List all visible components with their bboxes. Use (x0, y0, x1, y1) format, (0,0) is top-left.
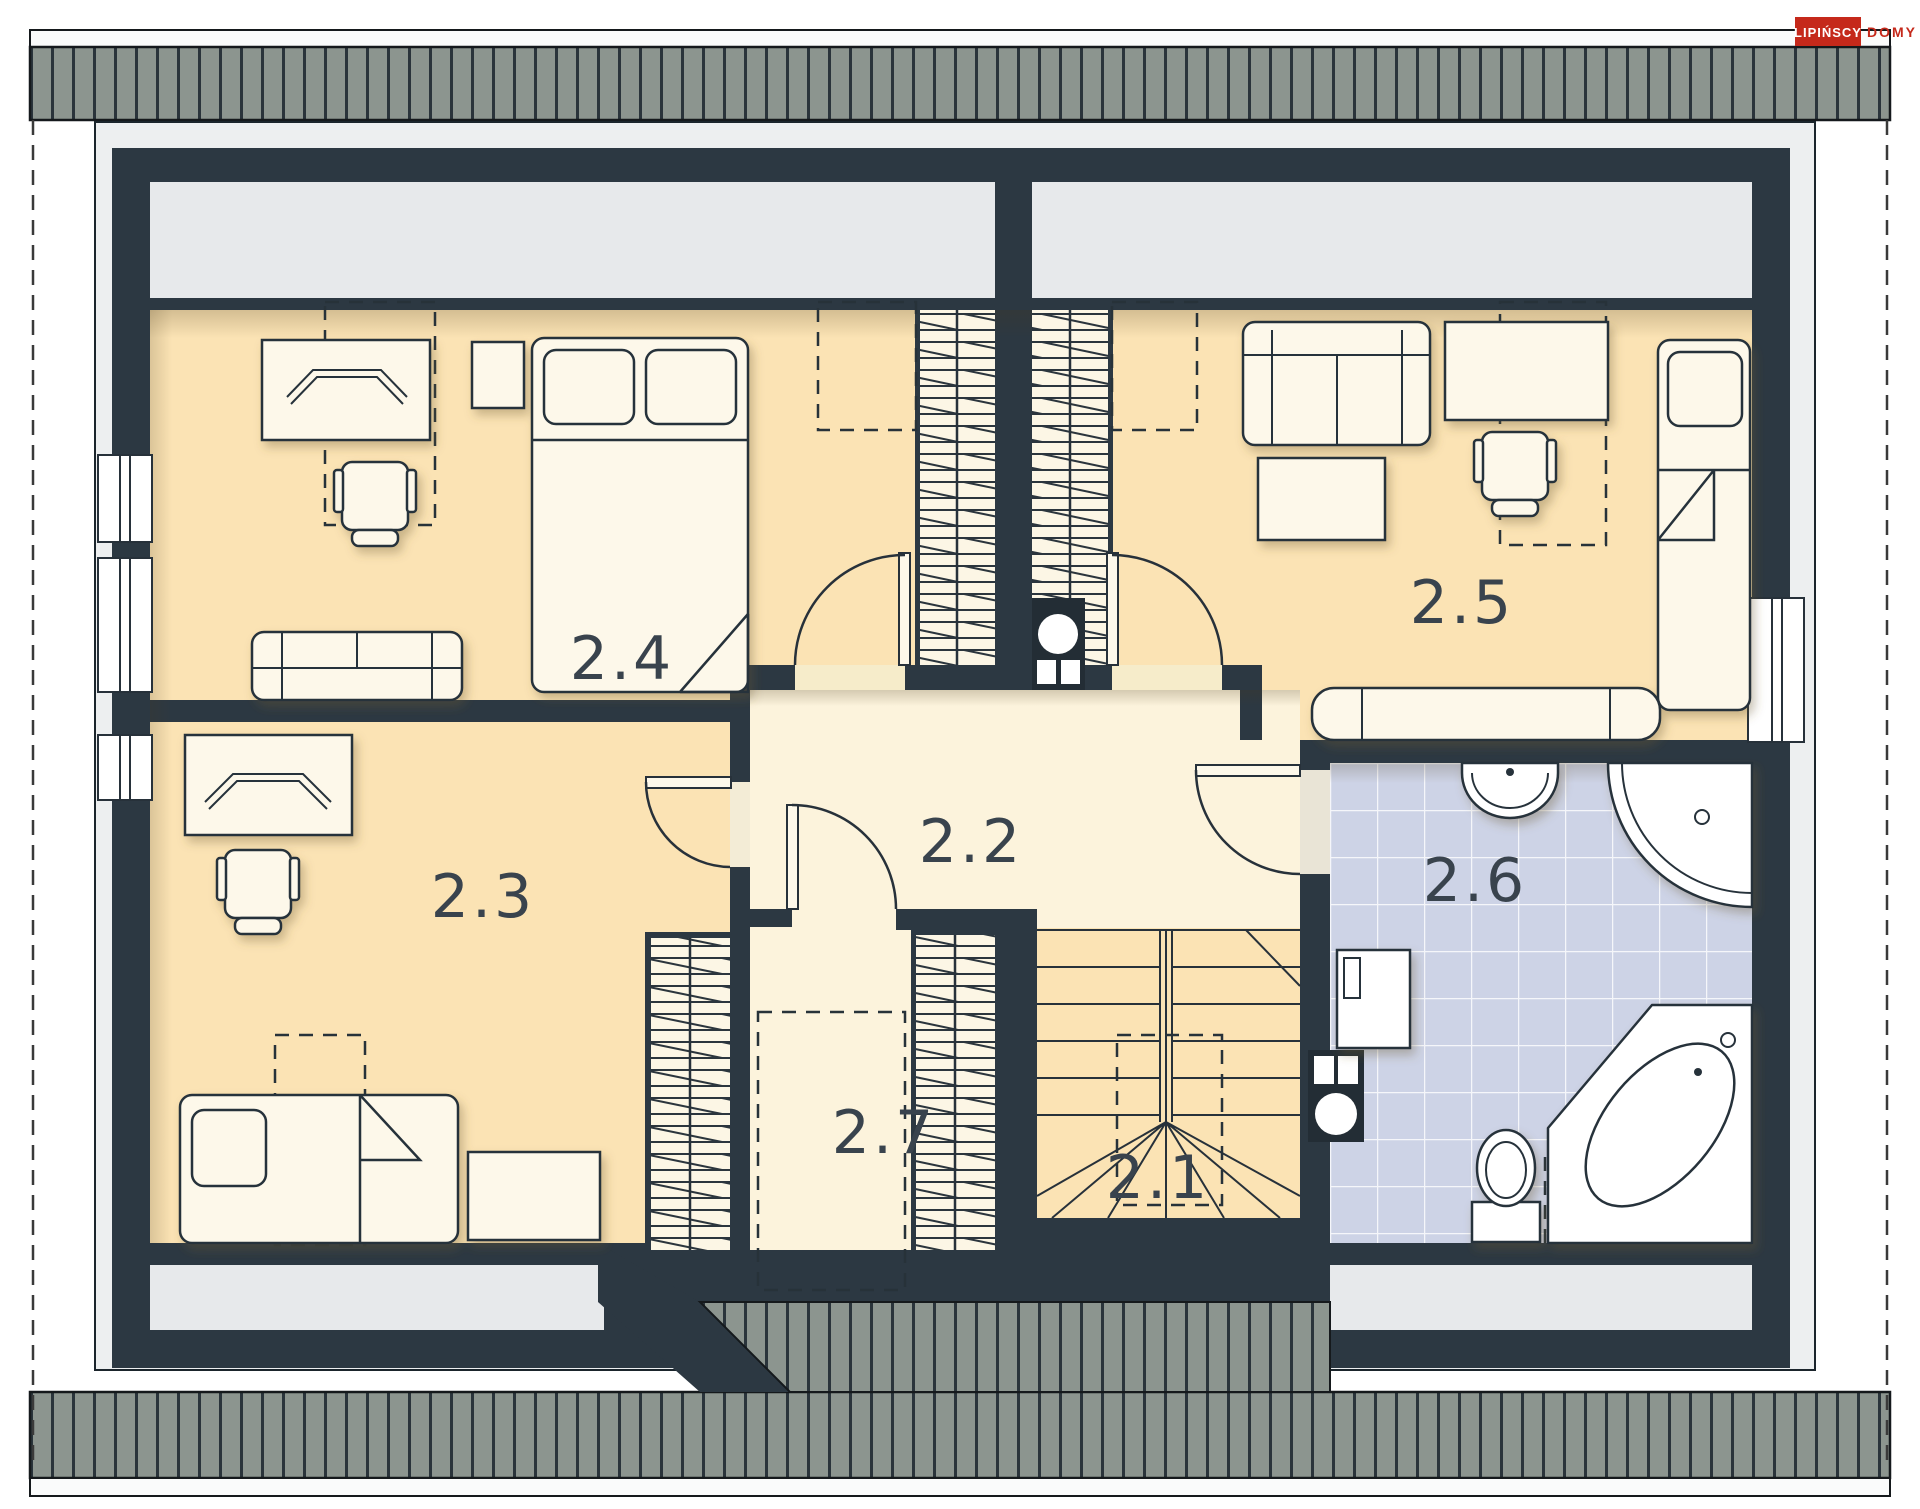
logo-primary-text: LIPIŃSCY (1794, 25, 1862, 40)
dresser (468, 1152, 600, 1240)
chimney-stack-center (1032, 598, 1085, 690)
knee-zone-top (150, 182, 1752, 298)
floor-plan-page: 2.4 2.5 2.3 2.2 2.6 2.7 2.1 LIPIŃSCY DOM… (0, 0, 1920, 1509)
wardrobe-2-4 (915, 310, 995, 665)
sofa (252, 632, 462, 700)
knee-zone-bottom-left (150, 1265, 604, 1330)
window-right-1 (1748, 598, 1804, 742)
label-room-2-3: 2.3 (431, 862, 535, 932)
room-2-7-floor (750, 927, 915, 1250)
label-room-2-7: 2.7 (832, 1098, 936, 1168)
spine-wall (995, 148, 1032, 690)
wardrobe-2-7 (911, 930, 995, 1250)
desk (185, 735, 352, 835)
floor-plan-svg: 2.4 2.5 2.3 2.2 2.6 2.7 2.1 LIPIŃSCY DOM… (0, 0, 1920, 1509)
wall-hall-e2 (896, 909, 1037, 930)
window-left-3 (98, 735, 152, 800)
label-room-2-4: 2.4 (570, 624, 674, 694)
roof-middle-section (700, 1302, 1330, 1392)
brand-logo: LIPIŃSCY DOMY (1794, 17, 1917, 46)
window-left-2 (98, 558, 152, 692)
knee-zone-bottom-right (1330, 1265, 1752, 1330)
nightstand (472, 342, 524, 408)
washing-machine (1337, 950, 1410, 1048)
wardrobe-2-3 (645, 932, 730, 1250)
chimney-stack-bathroom (1308, 1050, 1364, 1142)
label-room-2-1: 2.1 (1106, 1143, 1210, 1213)
desk (262, 340, 430, 440)
logo-secondary-text: DOMY (1867, 24, 1917, 40)
coffee-table (1258, 458, 1385, 540)
wall-hall-e1 (750, 909, 792, 927)
hall-2-2-floor (750, 690, 1300, 930)
label-room-2-5: 2.5 (1410, 568, 1514, 638)
single-bed (1658, 340, 1750, 710)
single-bed (180, 1095, 458, 1243)
roof-band-top (30, 30, 1890, 120)
roof-band-bottom (30, 1392, 1890, 1496)
bench (1312, 688, 1660, 740)
toilet (1472, 1130, 1540, 1242)
label-room-2-2: 2.2 (919, 807, 1023, 877)
label-room-2-6: 2.6 (1423, 846, 1527, 916)
sofa (1243, 322, 1430, 445)
window-left-1 (98, 455, 152, 542)
desk (1445, 322, 1608, 420)
